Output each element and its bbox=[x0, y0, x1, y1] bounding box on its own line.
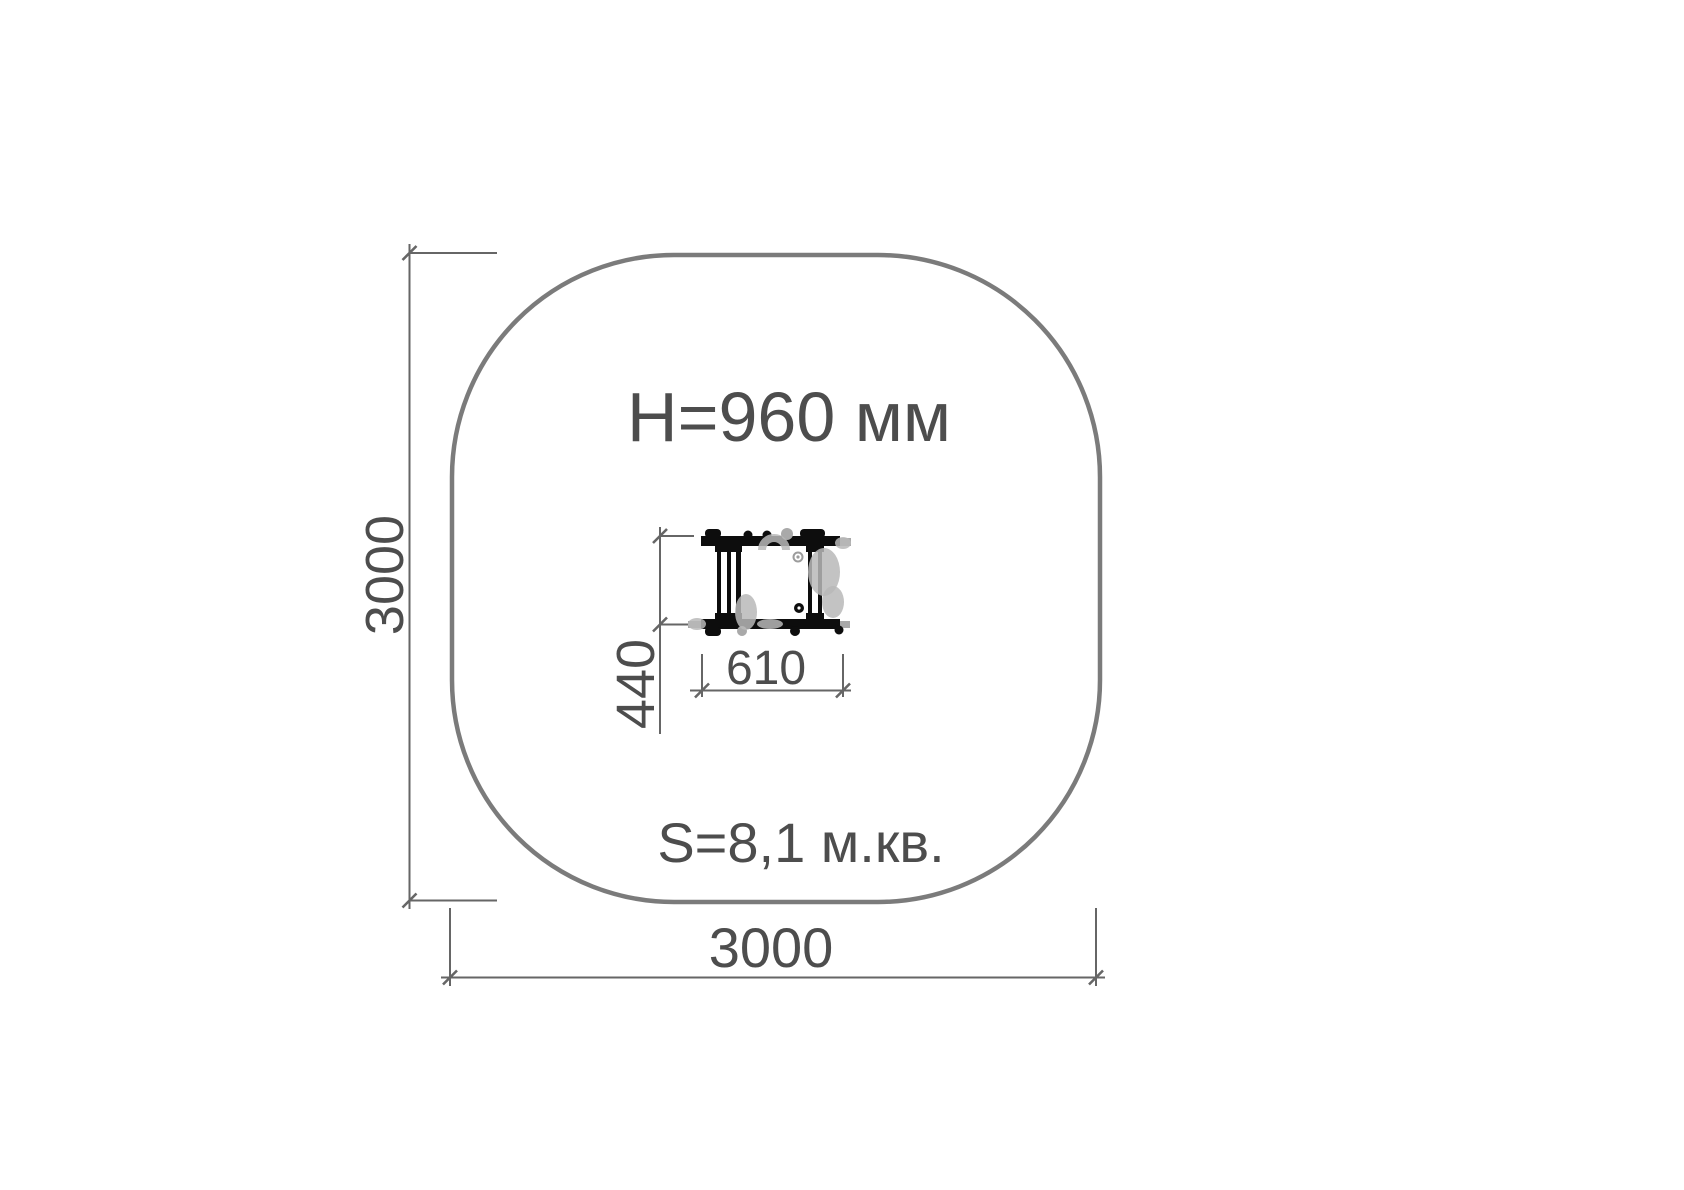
dimension-overall-width: 3000 bbox=[441, 908, 1105, 986]
dimension-equipment-depth: 440 bbox=[606, 527, 694, 734]
leg bbox=[727, 546, 731, 619]
bump bbox=[800, 529, 825, 538]
bolt-center bbox=[797, 606, 800, 609]
leg-plate bbox=[715, 546, 742, 552]
equipment-top-view bbox=[688, 528, 851, 636]
watermark-blob bbox=[735, 594, 757, 630]
dimension-overall-height: 3000 bbox=[355, 244, 497, 909]
bump bbox=[744, 531, 753, 540]
area-label: S=8,1 м.кв. bbox=[657, 811, 944, 874]
drawing-canvas: H=960 мм S=8,1 м.кв. 3000 3000 440 610 bbox=[0, 0, 1684, 1190]
plan-drawing: H=960 мм S=8,1 м.кв. 3000 3000 440 610 bbox=[0, 0, 1684, 1190]
bump bbox=[835, 626, 844, 635]
watermark-blob bbox=[822, 586, 844, 618]
watermark-blob bbox=[688, 618, 706, 630]
equipment-height-label: H=960 мм bbox=[627, 378, 951, 456]
leg-plate bbox=[806, 613, 824, 619]
watermark-blob bbox=[835, 537, 851, 549]
bump bbox=[705, 529, 721, 538]
bump bbox=[705, 627, 721, 636]
bump bbox=[790, 626, 800, 636]
equipment-legs bbox=[715, 546, 824, 619]
overall-width-value: 3000 bbox=[709, 916, 834, 979]
dimension-equipment-width: 610 bbox=[690, 642, 851, 698]
watermark bbox=[688, 537, 851, 630]
equipment-depth-value: 440 bbox=[606, 639, 666, 729]
watermark-blob bbox=[757, 619, 783, 629]
overall-height-value: 3000 bbox=[355, 515, 415, 635]
leg bbox=[717, 546, 721, 619]
bolt-center bbox=[796, 555, 799, 558]
equipment-width-value: 610 bbox=[726, 642, 806, 695]
safety-zone-outline bbox=[452, 255, 1100, 902]
bolts bbox=[794, 553, 805, 614]
